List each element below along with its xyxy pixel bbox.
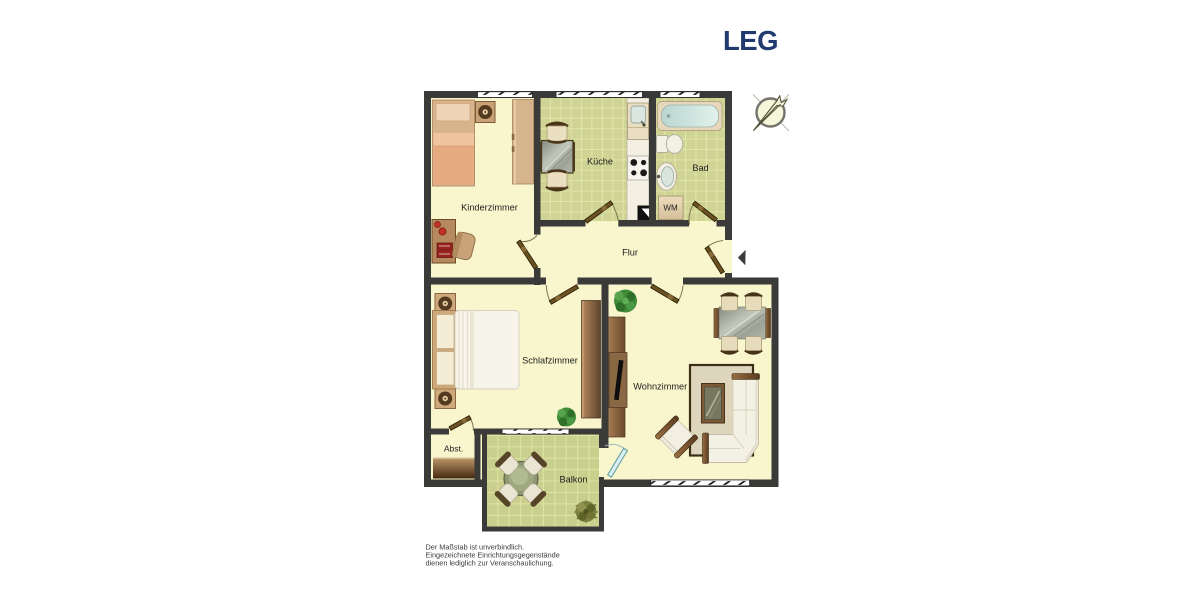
svg-text:Küche: Küche bbox=[587, 156, 613, 166]
svg-text:dienen lediglich zur Veranscha: dienen lediglich zur Veranschaulichung. bbox=[426, 559, 554, 568]
svg-text:Wohnzimmer: Wohnzimmer bbox=[633, 381, 687, 391]
svg-text:LEG: LEG bbox=[723, 25, 778, 56]
svg-text:Bad: Bad bbox=[692, 163, 708, 173]
svg-text:Flur: Flur bbox=[622, 247, 638, 257]
svg-text:Abst.: Abst. bbox=[444, 443, 463, 453]
svg-text:Kinderzimmer: Kinderzimmer bbox=[461, 202, 518, 212]
svg-text:Schlafzimmer: Schlafzimmer bbox=[522, 355, 578, 365]
svg-text:Balkon: Balkon bbox=[559, 474, 587, 484]
svg-text:WM: WM bbox=[663, 203, 678, 212]
